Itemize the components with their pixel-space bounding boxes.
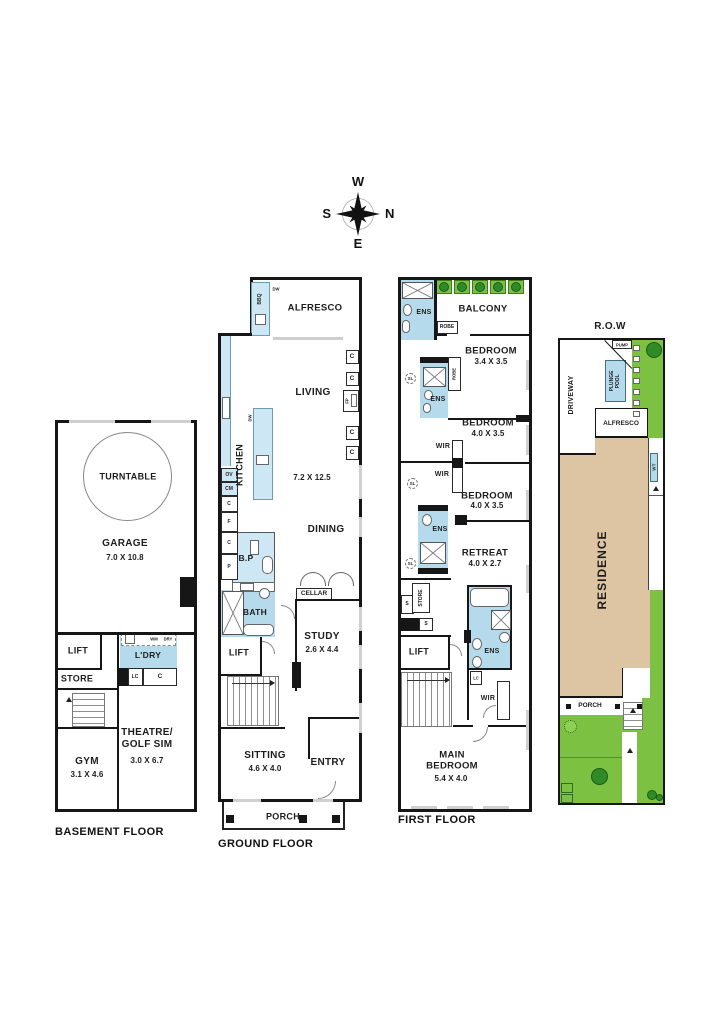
tree-icon xyxy=(591,768,608,785)
porch-post xyxy=(226,815,234,823)
sink-icon xyxy=(240,583,254,591)
bathtub-icon xyxy=(243,624,274,636)
basement-plan: TURNTABLE GARAGE 7.0 X 10.8 WM DRY L'DRY… xyxy=(55,420,197,812)
oven-label: OV xyxy=(225,472,232,478)
wall xyxy=(465,462,529,464)
planter-box xyxy=(472,280,488,294)
bedroom1-label: BEDROOM xyxy=(465,345,517,356)
living-label: LIVING xyxy=(295,387,330,399)
robe-label: ROBE xyxy=(440,324,454,330)
bedroom1-dim: 3.4 X 3.5 xyxy=(475,357,508,367)
rear-notch xyxy=(622,668,650,698)
front-path xyxy=(622,732,637,803)
bbq-bench xyxy=(251,282,270,336)
window xyxy=(359,517,362,537)
stepping-pad xyxy=(633,411,640,417)
driveway-label: DRIVEWAY xyxy=(568,375,576,414)
store-label: STORE xyxy=(418,589,424,606)
tree-icon xyxy=(511,282,521,292)
shower-icon xyxy=(222,591,244,635)
stair-direction-arrow xyxy=(270,680,275,686)
skylight-icon: SL xyxy=(405,558,416,569)
study-label: STUDY xyxy=(304,631,339,643)
floorplan-page: W N S E BASEMENT FLOOR GROUND FLOOR FIRS… xyxy=(0,0,724,1024)
tree-icon xyxy=(457,282,467,292)
compass-south-label: S xyxy=(322,206,331,221)
stepping-pad xyxy=(633,345,640,351)
basin-icon xyxy=(423,403,431,413)
wall xyxy=(58,668,102,670)
door-arc xyxy=(483,705,496,718)
porch-post xyxy=(332,815,340,823)
balcony-label: BALCONY xyxy=(458,303,507,314)
robe-label: ROBE xyxy=(451,368,456,380)
basin-icon xyxy=(472,656,482,668)
bedroom2-dim: 4.0 X 3.5 xyxy=(472,429,505,439)
tree-icon xyxy=(656,794,663,801)
laundry-label: L'DRY xyxy=(135,650,161,660)
porch-label: PORCH xyxy=(266,812,300,823)
porch-post xyxy=(637,704,642,709)
wall xyxy=(464,630,471,643)
planter-box xyxy=(490,280,506,294)
planter-box xyxy=(436,280,452,294)
wall xyxy=(448,635,450,668)
wall xyxy=(516,415,529,422)
wir-label: WIR xyxy=(481,695,496,703)
sink-icon xyxy=(255,314,266,325)
wall xyxy=(401,461,452,463)
gate-arrow xyxy=(653,486,659,491)
cupboard-label: C xyxy=(158,673,163,681)
toilet-icon xyxy=(422,514,432,526)
gate-line xyxy=(649,495,663,496)
tree-icon xyxy=(475,282,485,292)
wall-notch xyxy=(180,577,194,607)
ensuite-label: ENS xyxy=(416,309,431,317)
alfresco-label: ALFRESCO xyxy=(288,302,343,313)
wall xyxy=(401,618,419,631)
cupboard-label: C xyxy=(227,540,231,546)
tree-icon xyxy=(646,342,662,358)
stair-direction-arrow xyxy=(445,677,450,683)
stair-arrow-line xyxy=(407,680,445,681)
kitchen-label: KITCHEN xyxy=(235,444,246,486)
gym-dim: 3.1 X 4.6 xyxy=(71,770,104,780)
ground-floor-title: GROUND FLOOR xyxy=(218,838,313,850)
bedroom2-label: BEDROOM xyxy=(462,417,514,428)
water-tank-label: WT xyxy=(651,463,656,470)
fridge-label: F xyxy=(227,519,230,525)
porch-post xyxy=(566,704,571,709)
sliding-door xyxy=(273,337,343,340)
fireplace-box-icon xyxy=(351,394,357,407)
store-label: STORE xyxy=(61,674,93,685)
butlers-pantry-label: B.P xyxy=(238,553,253,563)
window xyxy=(526,425,529,455)
fireplace-label: FP xyxy=(344,398,349,403)
living-dining-dim: 7.2 X 12.5 xyxy=(293,473,330,483)
plunge-pool-label: PLUNGE POOL xyxy=(609,371,621,392)
wall xyxy=(418,505,448,511)
bath-label: BATH xyxy=(243,607,267,617)
wall xyxy=(308,717,362,719)
residence-label: RESIDENCE xyxy=(595,530,609,609)
planter-box xyxy=(508,280,524,294)
wall xyxy=(218,674,262,676)
turntable-label: TURNTABLE xyxy=(99,472,156,483)
tree-icon xyxy=(439,282,449,292)
wall xyxy=(455,515,467,525)
planter-box xyxy=(561,783,573,793)
stepping-pad xyxy=(633,367,640,373)
entry-label: ENTRY xyxy=(310,757,345,769)
wir-label: WIR xyxy=(436,443,451,451)
stepping-pad xyxy=(633,400,640,406)
toilet-icon xyxy=(499,632,510,643)
skylight-icon: SL xyxy=(407,478,418,489)
wall xyxy=(260,637,262,674)
window xyxy=(313,799,333,802)
basin-icon xyxy=(402,320,410,333)
window xyxy=(447,806,473,809)
porch-post xyxy=(299,815,307,823)
lift-label: LIFT xyxy=(68,646,88,657)
site-porch-label: PORCH xyxy=(578,702,601,710)
dining-label: DINING xyxy=(308,524,345,536)
wall xyxy=(434,280,437,340)
wall xyxy=(295,599,362,601)
dishwasher-label: DW xyxy=(247,415,252,422)
wall xyxy=(118,668,128,686)
ensuite-label: ENS xyxy=(430,396,445,404)
wall xyxy=(622,668,623,698)
path-arrow xyxy=(627,748,633,753)
cupboard-label: C xyxy=(350,429,355,437)
bedroom3-label: BEDROOM xyxy=(461,490,513,501)
gym-label: GYM xyxy=(75,756,99,768)
basement-floor-title: BASEMENT FLOOR xyxy=(55,826,164,838)
cupboard-label: C xyxy=(350,449,355,457)
window xyxy=(483,806,509,809)
window xyxy=(526,565,529,593)
cupboard-label: C xyxy=(227,501,231,507)
stair-arrow-line xyxy=(232,683,270,684)
closet xyxy=(497,681,510,720)
theatre-dim: 3.0 X 6.7 xyxy=(131,756,164,766)
wall xyxy=(418,568,448,574)
cellar-label: CELLAR xyxy=(301,590,327,598)
row-title: R.O.W xyxy=(594,321,626,333)
skylight-icon: SL xyxy=(405,373,416,384)
study-dim: 2.6 X 4.4 xyxy=(306,645,339,655)
laundry-tub-icon xyxy=(125,634,135,644)
window xyxy=(526,360,529,390)
first-floor-plan: ENS BALCONY ROBE BEDROOM 3.4 X 3.5 SL SL… xyxy=(398,277,532,812)
shower-icon xyxy=(402,282,433,299)
wall xyxy=(453,725,473,727)
ground-floor-plan: BBQ DW ALFRESCO LIVING C C FP C C KITCHE… xyxy=(218,277,362,830)
window xyxy=(233,799,261,802)
dryer-label: DRY xyxy=(164,636,173,641)
ensuite-label: ENS xyxy=(432,526,447,534)
cupboard-label: C xyxy=(350,353,355,361)
wall xyxy=(488,725,529,727)
dishwasher-label: DW xyxy=(273,286,280,291)
wall xyxy=(401,635,451,637)
compass-star-cardinal xyxy=(336,192,380,236)
window xyxy=(411,806,437,809)
cooktop-icon xyxy=(222,397,230,419)
garage-window xyxy=(69,420,115,423)
wall xyxy=(560,696,623,698)
sink-icon xyxy=(256,455,269,465)
retreat-label: RETREAT xyxy=(462,547,508,558)
wall xyxy=(435,334,447,336)
garden-divider xyxy=(560,757,622,758)
planter-box xyxy=(454,280,470,294)
boundary-line xyxy=(648,438,649,590)
wall xyxy=(100,632,102,668)
bbq-label: BBQ xyxy=(257,293,263,304)
stairs xyxy=(72,693,105,727)
wall xyxy=(218,727,285,729)
bathtub-icon xyxy=(470,588,509,607)
wall xyxy=(401,668,450,670)
toilet-icon xyxy=(259,588,270,599)
wall xyxy=(58,727,117,729)
ensuite-label: ENS xyxy=(484,648,499,656)
compass-east-label: E xyxy=(354,236,363,251)
lift-label: LIFT xyxy=(229,648,249,659)
compass-west-label: W xyxy=(352,174,365,189)
site-plan: PUMP PLUNGE POOL DRIVEWAY ALFRESCO RESID… xyxy=(558,338,665,805)
retreat-dim: 4.0 X 2.7 xyxy=(469,559,502,569)
linen-cupboard-label: LC xyxy=(132,674,139,680)
pump-label: PUMP xyxy=(616,342,628,347)
garage-window xyxy=(151,420,191,423)
door-arc xyxy=(473,727,488,742)
shower-icon xyxy=(491,610,511,630)
store-s-label: S xyxy=(424,621,427,627)
porch-post xyxy=(615,704,620,709)
wall xyxy=(595,436,648,438)
compass-north-label: N xyxy=(385,206,394,221)
bedroom3-dim: 4.0 X 3.5 xyxy=(471,501,504,511)
kitchen-island xyxy=(253,408,273,500)
door-arc xyxy=(450,644,462,656)
stepping-pad xyxy=(633,378,640,384)
basin-icon xyxy=(472,638,482,650)
shower-icon xyxy=(420,542,446,564)
sitting-label: SITTING xyxy=(244,750,286,762)
basin-icon xyxy=(262,556,273,574)
theatre-label: THEATRE/ GOLF SIM xyxy=(121,727,173,751)
compass-rose: W N S E xyxy=(322,170,396,258)
wir-label: WIR xyxy=(435,471,450,479)
tree-icon xyxy=(493,282,503,292)
main-bedroom-label: MAIN BEDROOM xyxy=(426,750,478,773)
wall xyxy=(420,357,448,363)
wall xyxy=(292,662,301,688)
steps-arrow xyxy=(630,708,636,713)
pantry-label: P xyxy=(227,564,230,570)
planter-box xyxy=(561,794,573,803)
window xyxy=(359,703,362,733)
wall xyxy=(452,458,463,468)
shrub-icon xyxy=(564,720,577,733)
garage-dim: 7.0 X 10.8 xyxy=(106,553,143,563)
window xyxy=(526,710,529,750)
wall xyxy=(467,670,469,720)
residence-upper xyxy=(595,438,648,455)
wall xyxy=(560,453,596,455)
window xyxy=(359,465,362,499)
window xyxy=(359,645,362,669)
stepping-pad xyxy=(633,356,640,362)
first-floor-title: FIRST FLOOR xyxy=(398,814,476,826)
wall xyxy=(218,333,252,336)
garage-label: GARAGE xyxy=(102,538,148,550)
window xyxy=(359,607,362,631)
linen-cupboard-label: LC xyxy=(473,675,479,680)
stepping-pad xyxy=(633,389,640,395)
wall xyxy=(58,632,194,635)
wall xyxy=(308,719,310,759)
window xyxy=(526,490,529,520)
main-bedroom-dim: 5.4 X 4.0 xyxy=(435,774,468,784)
stair-direction-arrow xyxy=(66,697,72,702)
washing-machine-label: WM xyxy=(150,636,157,641)
shower-icon xyxy=(423,367,446,387)
site-alfresco-label: ALFRESCO xyxy=(603,420,639,428)
wall xyxy=(58,688,117,690)
wall xyxy=(470,334,529,336)
toilet-icon xyxy=(403,304,412,316)
coffee-machine-label: CM xyxy=(225,486,233,492)
cupboard-label: C xyxy=(350,375,355,383)
lift-label: LIFT xyxy=(409,647,429,658)
wall xyxy=(117,632,119,809)
wall xyxy=(401,578,451,580)
store-s-label: S xyxy=(405,601,408,607)
sitting-dim: 4.6 X 4.0 xyxy=(249,764,282,774)
